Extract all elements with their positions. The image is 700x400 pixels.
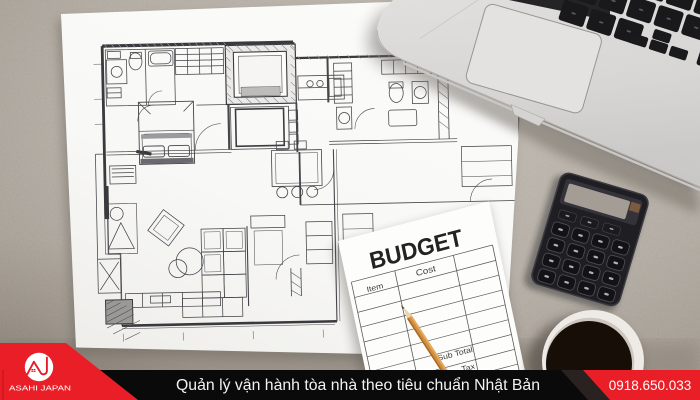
svg-text:Quản lý vận hành tòa nhà theo: Quản lý vận hành tòa nhà theo tiêu chuẩn… [176,377,540,394]
svg-text:0918.650.033: 0918.650.033 [609,378,692,393]
svg-text:ASAHI JAPAN: ASAHI JAPAN [9,384,71,393]
